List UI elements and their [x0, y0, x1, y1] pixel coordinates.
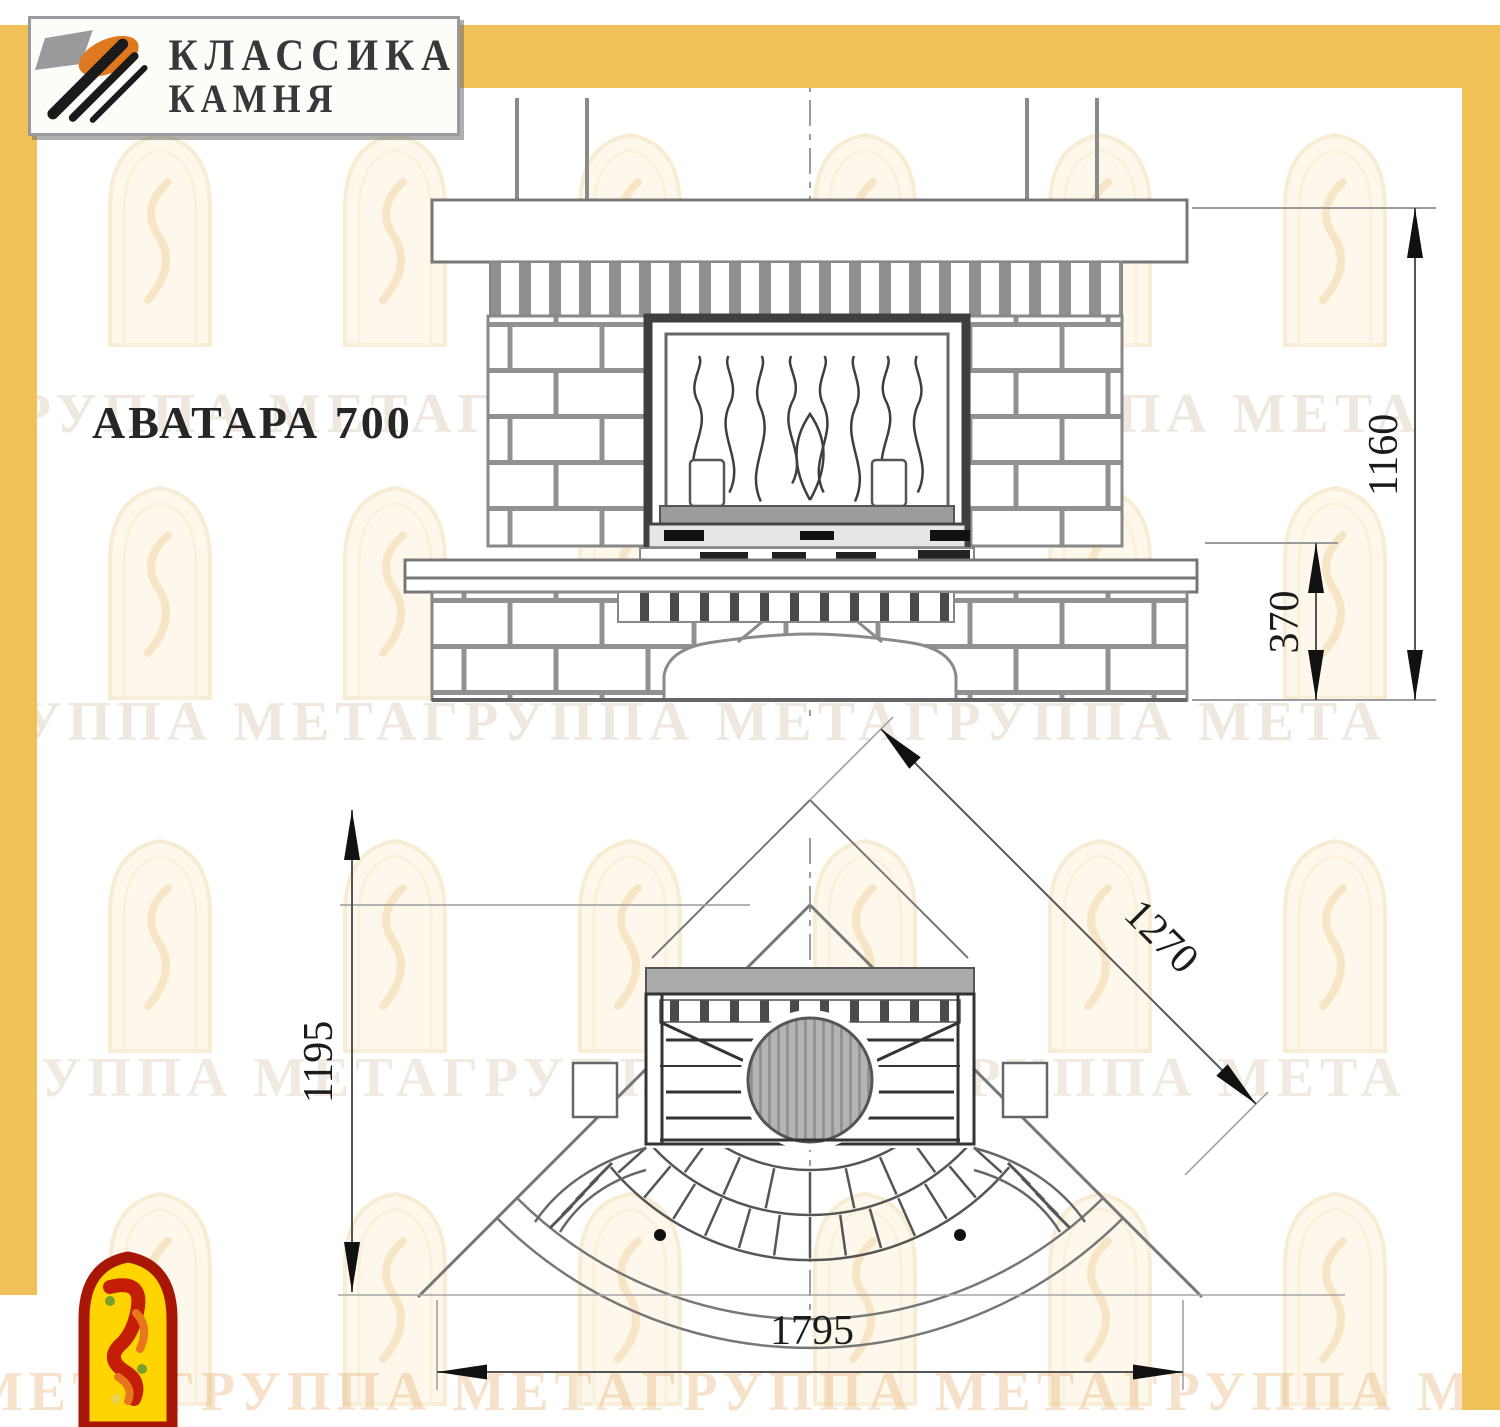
hearth-shelf [405, 560, 1197, 592]
brick-column-left [488, 316, 655, 546]
base-plinth [432, 592, 1187, 700]
mantel-shelf [432, 200, 1187, 262]
firebox [640, 318, 974, 564]
frame-right [1462, 25, 1500, 1410]
watermark-band-4: МЕТАГРУППА МЕТАГРУППА МЕТАГРУППА М [0, 1361, 1476, 1423]
brand-name-line1: КЛАССИКА [169, 33, 457, 79]
dim-label-1160: 1160 [1361, 414, 1407, 496]
flue-circle [748, 1018, 872, 1142]
frame-left [0, 25, 37, 1295]
base-dentil-row [618, 592, 954, 622]
dim-label-1795: 1795 [770, 1308, 854, 1354]
brand-name: КЛАССИКА КАМНЯ [169, 33, 457, 120]
meta-arch-logo-icon [76, 1249, 180, 1427]
technical-drawing: ГРУППА МЕТАГРУППА МЕТАГРУППА МЕТА ГРУППА… [0, 0, 1500, 1427]
stone-logo-icon [31, 26, 159, 126]
firebox-plan [646, 968, 974, 1150]
page: ГРУППА МЕТАГРУППА МЕТАГРУППА МЕТА ГРУППА… [0, 0, 1500, 1427]
dim-label-1195: 1195 [296, 1021, 342, 1103]
dentil-row [490, 262, 1122, 316]
brand-name-line2: КАМНЯ [169, 78, 457, 119]
base-arch-opening [664, 634, 956, 700]
page-title: АВАТАРА 700 [92, 396, 413, 449]
firebox-log-left [690, 460, 724, 506]
firebox-log-right [872, 460, 906, 506]
dim-label-370: 370 [1262, 591, 1308, 654]
brick-column-right [958, 316, 1122, 546]
brand-logo: КЛАССИКА КАМНЯ [28, 16, 460, 136]
